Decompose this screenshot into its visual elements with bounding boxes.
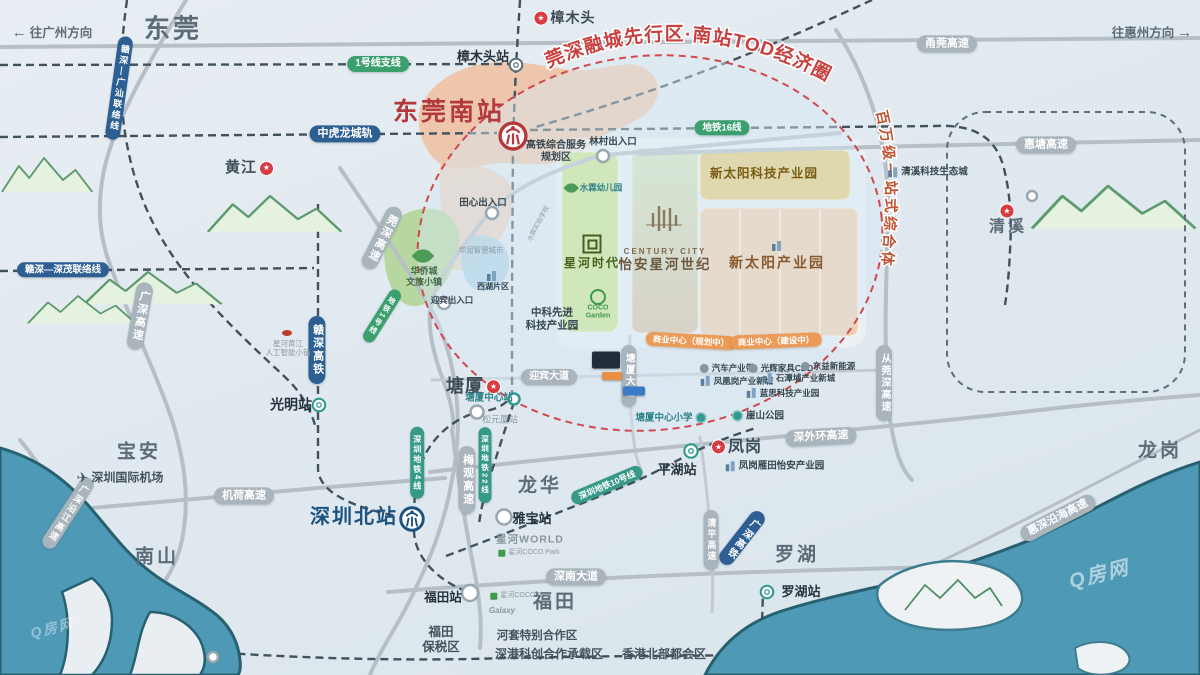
park-xintaiyang-tech-text: 新太阳科技产业园 bbox=[710, 167, 818, 182]
station-guangming-icon bbox=[311, 397, 328, 414]
park-xintaiyang: 新太阳产业园 bbox=[729, 255, 825, 272]
building-icon bbox=[772, 241, 782, 251]
pill-guanshen-expressway-text: 莞深高速 bbox=[364, 212, 399, 264]
poi-fenggang-text: 凤岗 bbox=[728, 437, 762, 456]
poi-hsr-service-area: 高铁综合服务规划区 bbox=[526, 140, 586, 164]
station-songyuanxia: 松元厦站 bbox=[482, 415, 518, 426]
landmark-card-blue bbox=[623, 387, 645, 396]
poi-galaxy: Galaxy bbox=[489, 606, 515, 616]
city-nanshan-text: 南山 bbox=[135, 547, 179, 570]
school-park-icon bbox=[696, 412, 707, 423]
poi-hetao-zone: 河套特别合作区 bbox=[497, 630, 578, 644]
pill-sz-metro-line10-text: 深圳地铁10号线 bbox=[577, 468, 637, 501]
station-futian: 福田站 bbox=[424, 591, 462, 606]
pill-ganshen-guangshan-link: 赣深—广汕联络线 bbox=[104, 35, 133, 140]
city-longgang: 龙岗 bbox=[1138, 441, 1182, 464]
pill-meiguan-expressway: 梅观高速 bbox=[458, 446, 475, 514]
park-xintaiyang-text: 新太阳产业园 bbox=[729, 255, 825, 272]
poi-fenggang: ★凤岗 bbox=[712, 437, 762, 456]
pill-shenwaihuan-expressway-text: 深外环高速 bbox=[793, 429, 849, 445]
poi-yingbin-exit-text: 迎宾出入口 bbox=[431, 295, 474, 305]
pill-shenwaihuan-expressway: 深外环高速 bbox=[785, 427, 857, 448]
poi-oct-town-icon bbox=[415, 248, 431, 264]
pill-ganshen-hsr-text: 赣深高铁 bbox=[310, 324, 323, 376]
poi-shengang-zone-text: 深港科创合作承载区 bbox=[495, 647, 603, 661]
pill-guangshen-hsr-text: 广深高铁 bbox=[722, 515, 761, 560]
banner-business-center-building: 商业中心（建设中） bbox=[731, 332, 822, 349]
city-luohu: 罗湖 bbox=[775, 545, 819, 568]
banner-business-center-building-text: 商业中心（建设中） bbox=[738, 335, 815, 348]
project-xinghe-shidai-text: 星河时代 bbox=[564, 256, 620, 270]
pill-yongguan-expressway: 甬莞高速 bbox=[917, 35, 977, 52]
pill-jihe-expressway: 机荷高速 bbox=[214, 487, 274, 504]
pill-guangshen-hsr: 广深高铁 bbox=[716, 508, 768, 568]
station-zhangmutou: 樟木头站 bbox=[457, 49, 509, 65]
pill-sz-metro-line4: 深圳地铁4线 bbox=[410, 427, 424, 499]
pill-huishen-coastal-expressway: 惠深沿海高速 bbox=[1018, 492, 1099, 545]
leaf-icon bbox=[412, 245, 435, 268]
landmark-card-dark bbox=[592, 352, 620, 369]
pill-jihe-expressway-text: 机荷高速 bbox=[222, 489, 266, 502]
poi-xinghe-ai-icon bbox=[282, 330, 292, 336]
poi-huarun-smart-city-text: 华润智慧城市 bbox=[459, 246, 504, 255]
poi-yashan-park-text: 崖山公园 bbox=[746, 410, 784, 421]
arrow-left-icon: ← bbox=[12, 24, 27, 42]
poi-oct-town: 华侨城文旅小镇 bbox=[406, 266, 442, 288]
pill-ganshen-hsr: 赣深高铁 bbox=[308, 316, 325, 384]
pill-ganshen-shenmao-link-text: 赣深—深茂联络线 bbox=[25, 264, 101, 275]
poi-zhangmutou-text: 樟木头 bbox=[551, 10, 596, 27]
building-icon bbox=[701, 376, 711, 386]
station-pinghu-icon bbox=[682, 442, 700, 460]
station-yabao-text: 雅宝站 bbox=[512, 511, 551, 527]
century-city-logo-icon bbox=[644, 201, 684, 235]
project-century-city: 怡安星河世纪 bbox=[619, 257, 712, 273]
landmark-card-orange bbox=[602, 372, 622, 380]
pill-guangshen-expressway: 广深高速 bbox=[126, 281, 155, 351]
airplane-icon: ✈ bbox=[77, 470, 89, 487]
poi-qingxi: 清溪 bbox=[989, 217, 1027, 236]
city-luohu-text: 罗湖 bbox=[775, 545, 819, 568]
poi-fenggang-yantian-park: 凤岗雁田怡安产业园 bbox=[726, 460, 825, 471]
poi-lansi-tech-park-text: 蓝思科技产业园 bbox=[760, 388, 820, 398]
star-icon: ★ bbox=[260, 162, 273, 175]
map-canvas: 莞深融城先行区·南站TOD经济圈 百万级一站式综合体 ←往广州方向往惠州方向→东… bbox=[0, 0, 1200, 675]
pill-metro-line16: 地铁16线 bbox=[694, 120, 749, 135]
building-icon bbox=[726, 461, 736, 471]
pill-line1-branch-text: 1号线支线 bbox=[355, 58, 401, 70]
city-baoan: 宝安 bbox=[117, 442, 161, 465]
poi-xihu-area: 西湖片区 bbox=[477, 282, 509, 292]
station-guangming: 光明站 bbox=[270, 397, 312, 414]
industry-icon bbox=[700, 364, 709, 373]
coco-park-icon bbox=[498, 549, 505, 556]
railway-station-icon bbox=[498, 121, 529, 152]
park-xintaiyang-tech: 新太阳科技产业园 bbox=[710, 167, 818, 182]
poi-shitanpu-new-city-text: 石潭埔产业新城 bbox=[776, 373, 836, 383]
school-park-icon bbox=[732, 410, 743, 421]
pill-tangxia-avenue: 塘厦大道 bbox=[621, 345, 636, 407]
star-icon: ★ bbox=[535, 11, 548, 24]
poi-qingxi-eco-city-text: 清溪科技生态城 bbox=[901, 166, 968, 177]
building-icon bbox=[747, 388, 757, 398]
poi-zhongke-park-text: 中科先进科技产业园 bbox=[526, 306, 579, 331]
poi-coco-park-2: 星河COCO Park bbox=[490, 592, 551, 600]
poi-coco-garden: COCOGarden bbox=[586, 305, 611, 322]
poi-zhongke-park: 中科先进科技产业园 bbox=[526, 306, 579, 331]
pill-qingping-expressway: 清平高速 bbox=[704, 510, 719, 570]
pill-sz-metro-line22-text: 深圳地铁22线 bbox=[481, 435, 490, 495]
station-dongguan-south: 东莞南站 bbox=[393, 97, 505, 127]
pill-ganshen-shenmao-link: 赣深—深茂联络线 bbox=[17, 262, 109, 277]
poi-coco-park-2-text: 星河COCO Park bbox=[500, 592, 551, 600]
pill-guangshen-expressway-text: 广深高速 bbox=[129, 289, 151, 343]
poi-hetao-zone-text: 河套特别合作区 bbox=[497, 630, 578, 644]
poi-futian-bonded-zone: 福田保税区 bbox=[422, 625, 460, 655]
coco-park-icon bbox=[490, 592, 497, 599]
direction-to-huizhou-text: 往惠州方向 bbox=[1112, 26, 1175, 41]
pill-guanshen-expressway: 莞深高速 bbox=[359, 204, 405, 272]
industry-icon bbox=[749, 364, 758, 373]
poi-dongyi-new-energy: 东益新能源 bbox=[801, 361, 856, 371]
station-guangming-text: 光明站 bbox=[270, 397, 312, 414]
pill-sz-metro-line10: 深圳地铁10号线 bbox=[569, 464, 645, 507]
station-songyuanxia-text: 松元厦站 bbox=[482, 415, 518, 426]
metro-station-icon bbox=[508, 57, 525, 74]
pill-shennan-avenue-text: 深南大道 bbox=[554, 570, 598, 583]
pill-metro-line16-text: 地铁16线 bbox=[702, 122, 741, 133]
pill-huitang-expressway: 惠塘高速 bbox=[1016, 136, 1076, 153]
station-luohu-text: 罗湖站 bbox=[781, 584, 820, 600]
building-icon bbox=[763, 373, 773, 383]
metro-station-icon bbox=[311, 397, 328, 414]
project-century-city-en: CENTURY CITY bbox=[624, 247, 707, 257]
building-icon bbox=[487, 271, 497, 281]
poi-galaxy-text: Galaxy bbox=[489, 606, 515, 616]
metro-station-icon bbox=[682, 442, 700, 460]
poi-lansi-tech-park: 蓝思科技产业园 bbox=[747, 388, 820, 398]
poi-huangjiang: 黄江★ bbox=[225, 159, 273, 177]
station-dongguan-south-icon bbox=[498, 121, 529, 152]
star-icon: ★ bbox=[712, 441, 725, 454]
poi-oct-town-text: 华侨城文旅小镇 bbox=[406, 266, 442, 288]
poi-hsr-service-area-text: 高铁综合服务规划区 bbox=[526, 140, 586, 164]
poi-shengang-zone: 深港科创合作承载区 bbox=[495, 647, 603, 661]
poi-auto-industry-belt: 汽车产业带 bbox=[700, 363, 755, 373]
station-zhangmutou-text: 樟木头站 bbox=[457, 49, 509, 65]
pill-yingbin-avenue-text: 迎宾大道 bbox=[529, 371, 569, 383]
poi-hk-northern-metropolis-text: 香港北部都会区 bbox=[622, 647, 706, 661]
poi-shitanpu-new-city: 石潭埔产业新城 bbox=[763, 373, 836, 383]
pill-yingbin-avenue: 迎宾大道 bbox=[521, 369, 577, 385]
logo-dot-icon bbox=[282, 330, 292, 336]
poi-zhangmutou: ★樟木头 bbox=[535, 10, 596, 27]
direction-to-guangzhou-text: 往广州方向 bbox=[30, 26, 93, 41]
project-century-city-text: 怡安星河世纪 bbox=[619, 257, 712, 273]
project-xinghe-shidai: 星河时代 bbox=[564, 256, 620, 270]
station-dongguan-south-text: 东莞南站 bbox=[393, 97, 505, 127]
poi-tangxia-primary-school: 塘厦中心小学 bbox=[635, 412, 706, 423]
poi-shuilin-kindergarten-text: 水霖幼儿园 bbox=[580, 183, 623, 193]
poi-shenzhen-airport-text: 深圳国际机场 bbox=[91, 471, 163, 485]
poi-qingxi-text: 清溪 bbox=[989, 217, 1027, 236]
poi-hk-northern-metropolis: 香港北部都会区 bbox=[622, 647, 706, 661]
station-shenzhen-north-text: 深圳北站 bbox=[310, 505, 398, 529]
banner-business-center-planned-text: 商业中心（规划中） bbox=[653, 334, 730, 348]
pill-congguanshen-expressway: 从莞深高速 bbox=[876, 345, 892, 421]
poi-shuilin-school-text: 水霖实验学校 bbox=[526, 205, 551, 243]
industry-icon bbox=[801, 362, 810, 371]
project-century-city-logo bbox=[644, 201, 684, 235]
coco-garden-icon bbox=[590, 289, 606, 305]
poi-qingxi-eco-city: 清溪科技生态城 bbox=[888, 166, 968, 177]
city-longgang-text: 龙岗 bbox=[1138, 441, 1182, 464]
pill-metro-line1: 地铁1号线 bbox=[361, 287, 404, 345]
pill-sz-metro-line4-text: 深圳地铁4线 bbox=[412, 435, 422, 491]
poi-tianxin-exit: 田心出入口 bbox=[459, 197, 507, 208]
poi-shuilin-school: 水霖实验学校 bbox=[526, 205, 551, 243]
poi-shenzhen-airport: ✈深圳国际机场 bbox=[77, 470, 164, 487]
station-pinghu-text: 平湖站 bbox=[657, 462, 696, 478]
poi-shuilin-kindergarten: 水霖幼儿园 bbox=[566, 183, 623, 194]
pill-qingping-expressway-text: 清平高速 bbox=[706, 518, 717, 562]
poi-xinghe-world: 星河WORLD bbox=[496, 534, 564, 547]
star-icon: ★ bbox=[1001, 205, 1014, 218]
banner-business-center-planned: 商业中心（规划中） bbox=[645, 332, 736, 351]
poi-coco-garden-text: COCOGarden bbox=[586, 305, 611, 322]
railway-station-icon bbox=[399, 506, 426, 533]
station-zhangmutou-icon bbox=[508, 57, 525, 74]
pill-metro-line1-text: 地铁1号线 bbox=[366, 295, 397, 337]
station-tangxia-center: 塘厦中心站 bbox=[465, 392, 513, 403]
city-longhua: 龙华 bbox=[518, 476, 562, 499]
qingxi-star-icon: ★ bbox=[1001, 205, 1014, 218]
building-icon bbox=[888, 167, 898, 177]
poi-huangjiang-text: 黄江 bbox=[225, 159, 257, 177]
poi-coco-park-1: 星河COCO Park bbox=[498, 549, 559, 557]
arrow-right-icon: → bbox=[1177, 24, 1192, 42]
poi-fenggang-yantian-park-text: 凤岗雁田怡安产业园 bbox=[739, 460, 825, 471]
poi-coco-garden-icon bbox=[590, 289, 606, 305]
station-luohu-icon bbox=[759, 584, 776, 601]
station-luohu: 罗湖站 bbox=[781, 584, 820, 600]
station-tangxia-center-text: 塘厦中心站 bbox=[465, 392, 513, 403]
pill-sz-metro-line22: 深圳地铁22线 bbox=[479, 427, 492, 503]
station-yabao: 雅宝站 bbox=[512, 511, 551, 527]
pill-huishen-coastal-expressway-text: 惠深沿海高速 bbox=[1026, 497, 1091, 539]
poi-tangxia-primary-school-text: 塘厦中心小学 bbox=[635, 412, 692, 423]
project-century-city-en-text: CENTURY CITY bbox=[624, 247, 707, 257]
station-futian-text: 福田站 bbox=[424, 591, 462, 606]
station-shenzhen-north: 深圳北站 bbox=[310, 505, 398, 529]
xinghe-logo-icon bbox=[583, 235, 602, 254]
city-dongguan: 东莞 bbox=[144, 13, 202, 44]
leaf-icon bbox=[563, 180, 579, 196]
poi-futian-bonded-zone-text: 福田保税区 bbox=[422, 625, 460, 655]
park-xintaiyang-icon bbox=[772, 241, 782, 251]
poi-yingbin-exit: 迎宾出入口 bbox=[431, 295, 474, 305]
station-shenzhen-north-icon bbox=[399, 506, 426, 533]
direction-to-huizhou: 往惠州方向→ bbox=[1112, 24, 1193, 42]
city-dongguan-text: 东莞 bbox=[144, 13, 202, 44]
city-baoan-text: 宝安 bbox=[117, 442, 161, 465]
project-xinghe-shidai-logo bbox=[583, 235, 602, 254]
poi-tianxin-exit-text: 田心出入口 bbox=[459, 197, 507, 208]
pill-zhonghulong-intercity-text: 中虎龙城轨 bbox=[318, 127, 373, 140]
metro-station-icon bbox=[759, 584, 776, 601]
poi-xihu-area-text: 西湖片区 bbox=[477, 282, 509, 292]
poi-xinghe-ai-town-text: 星河黄江人工智能小镇 bbox=[266, 339, 311, 357]
pill-huitang-expressway-text: 惠塘高速 bbox=[1024, 138, 1068, 151]
poi-xinghe-ai-town: 星河黄江人工智能小镇 bbox=[266, 339, 311, 357]
station-pinghu: 平湖站 bbox=[657, 462, 696, 478]
pill-guangshen-riverside-expressway-text: 广深沿江高速 bbox=[45, 482, 90, 543]
direction-to-guangzhou: ←往广州方向 bbox=[12, 24, 93, 42]
pill-meiguan-expressway-text: 梅观高速 bbox=[460, 454, 473, 506]
poi-huarun-smart-city: 华润智慧城市 bbox=[459, 246, 504, 255]
poi-lincun-exit-text: 林村出入口 bbox=[589, 136, 637, 147]
pill-congguanshen-expressway-text: 从莞深高速 bbox=[878, 353, 890, 413]
pill-shennan-avenue: 深南大道 bbox=[546, 568, 606, 585]
pill-ganshen-guangshan-link-text: 赣深—广汕联络线 bbox=[108, 44, 131, 133]
pill-line1-branch: 1号线支线 bbox=[347, 56, 409, 72]
pill-zhonghulong-intercity: 中虎龙城轨 bbox=[310, 125, 381, 142]
poi-coco-park-1-text: 星河COCO Park bbox=[508, 549, 559, 557]
poi-yashan-park: 崖山公园 bbox=[732, 410, 784, 421]
poi-dongyi-new-energy-text: 东益新能源 bbox=[813, 361, 856, 371]
poi-xihu-icon bbox=[487, 271, 497, 281]
city-nanshan: 南山 bbox=[135, 547, 179, 570]
pill-yongguan-expressway-text: 甬莞高速 bbox=[925, 37, 969, 50]
poi-lincun-exit: 林村出入口 bbox=[589, 136, 637, 147]
poi-xinghe-world-text: 星河WORLD bbox=[496, 534, 564, 547]
map-labels-layer: ←往广州方向往惠州方向→东莞宝安南山龙华罗湖福田龙岗★樟木头黄江★塘厦★★凤岗★… bbox=[0, 0, 1200, 675]
city-longhua-text: 龙华 bbox=[518, 476, 562, 499]
